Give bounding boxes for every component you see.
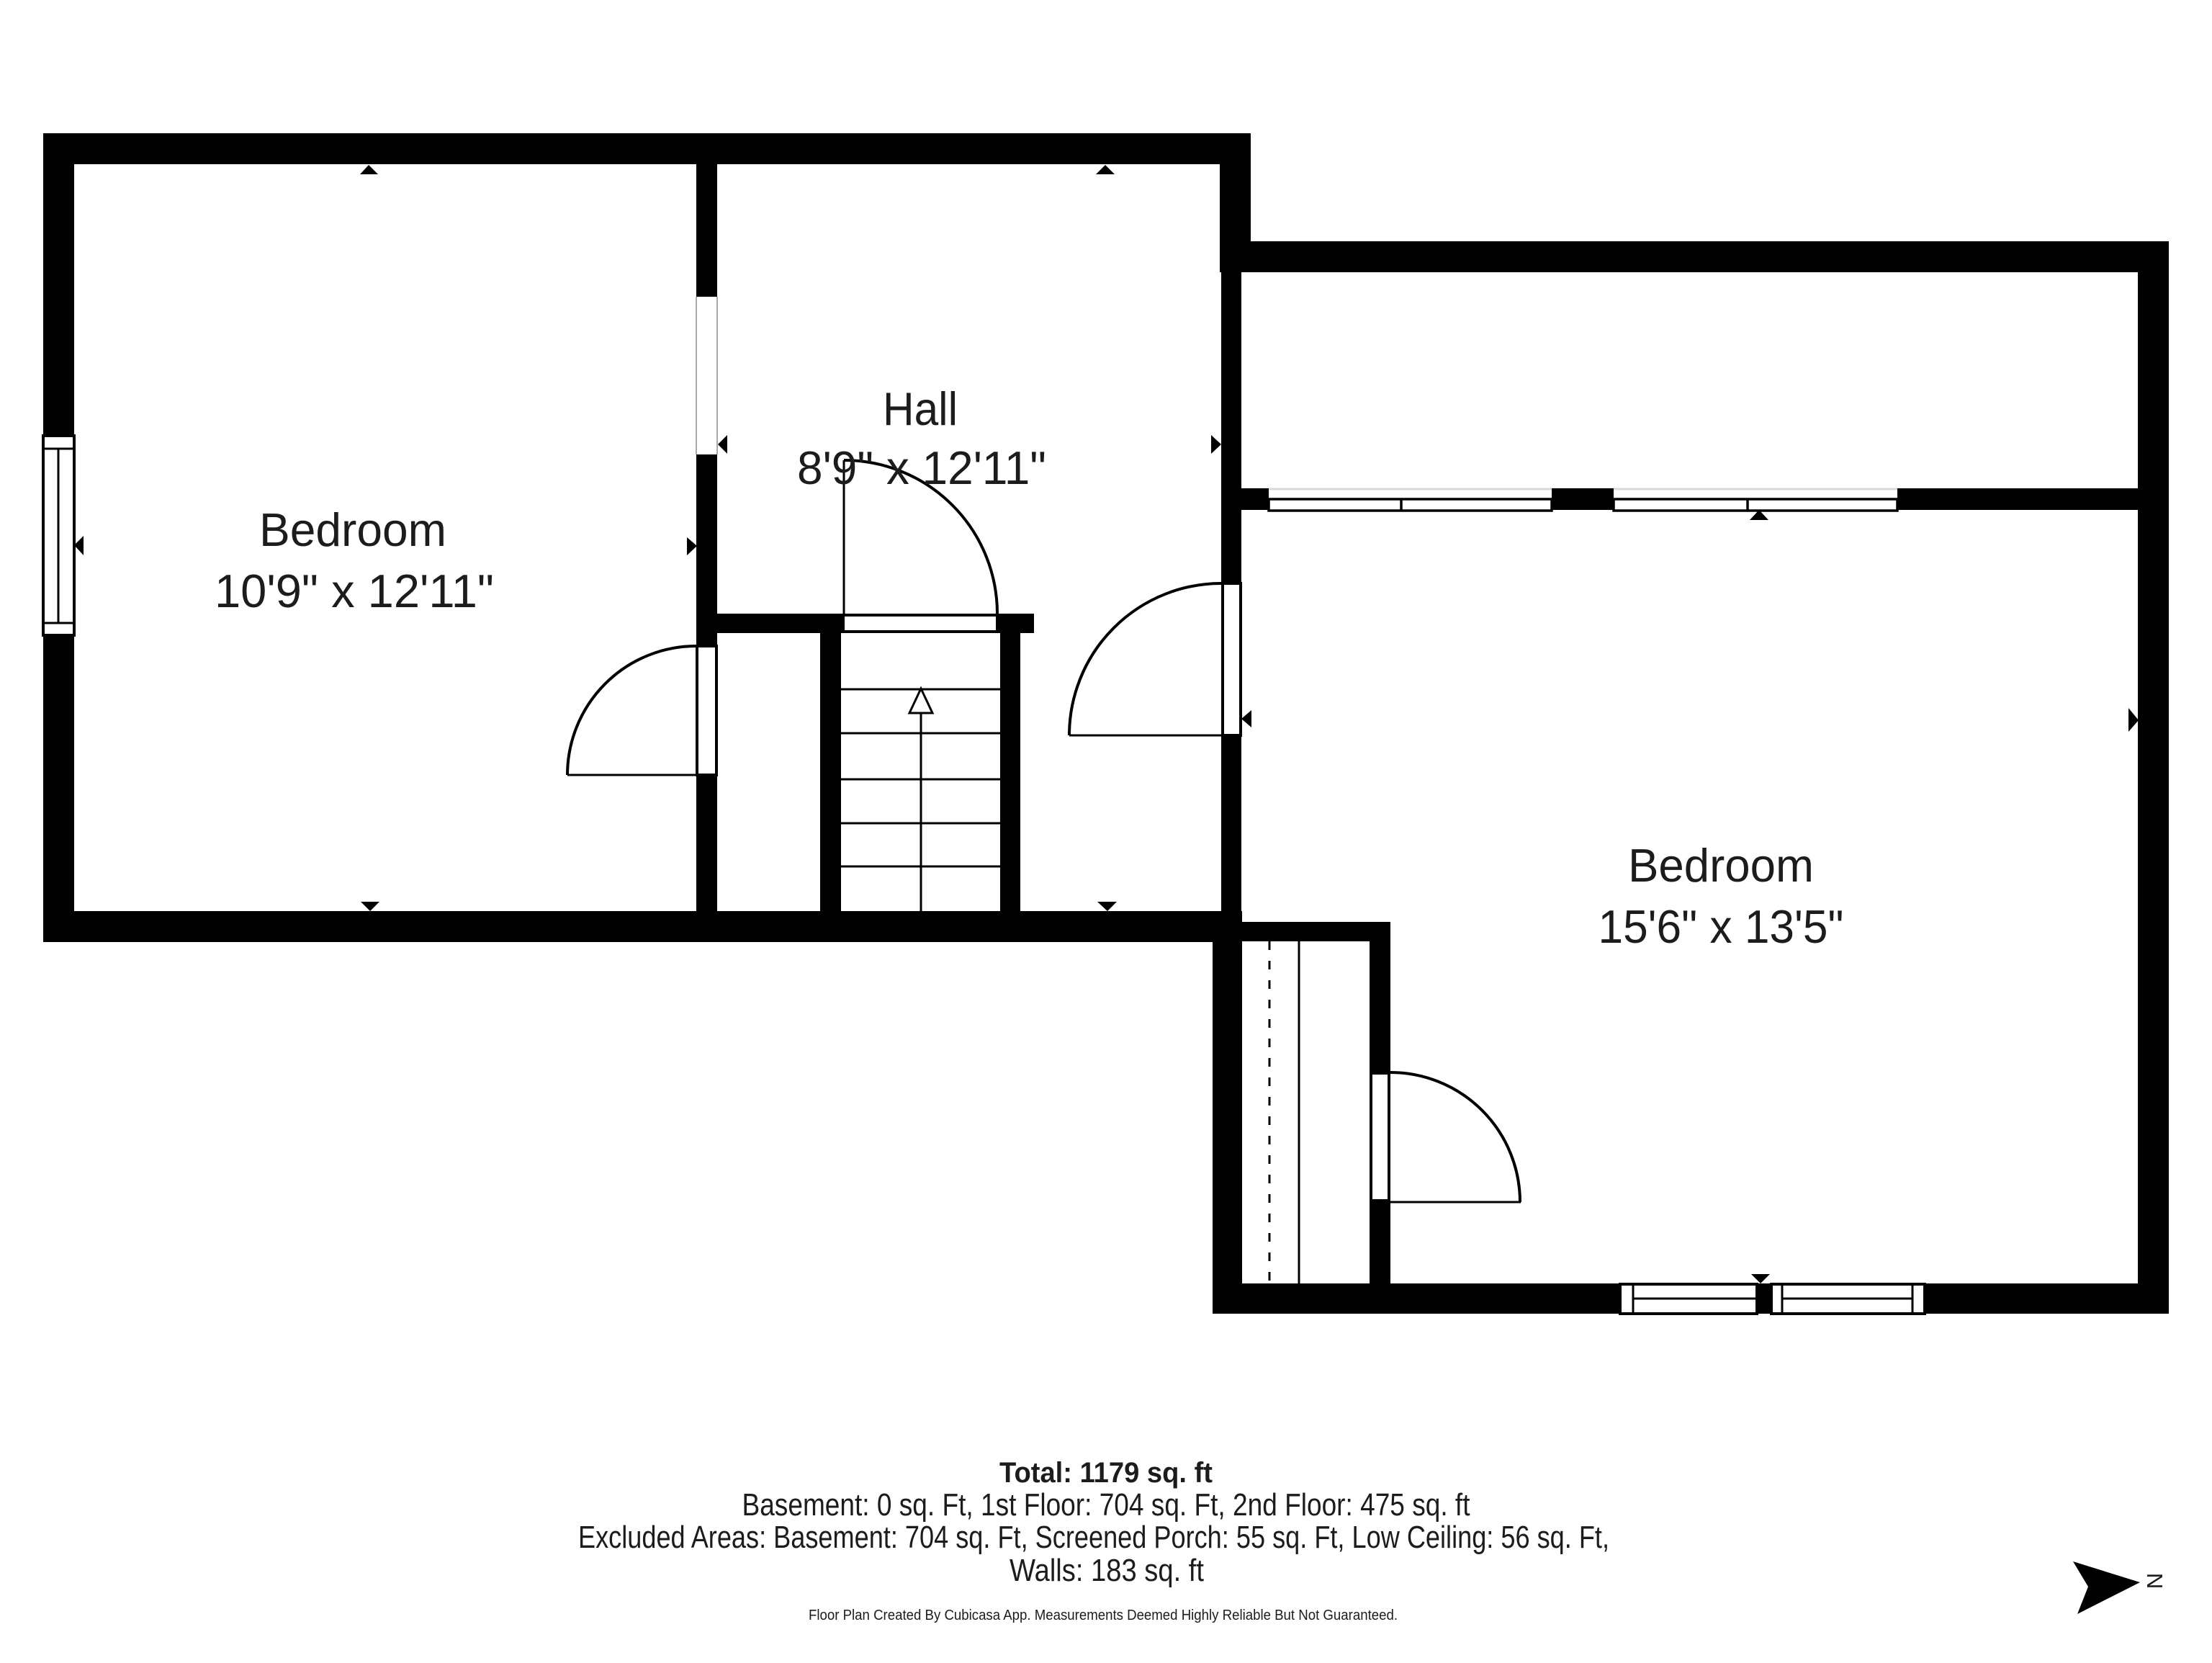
svg-text:Bedroom: Bedroom bbox=[259, 503, 446, 556]
svg-text:Total: 1179 sq. ft: Total: 1179 sq. ft bbox=[999, 1457, 1213, 1489]
svg-text:10'9" x 12'11": 10'9" x 12'11" bbox=[215, 565, 494, 617]
svg-text:Basement: 0 sq. Ft, 1st Floor:: Basement: 0 sq. Ft, 1st Floor: 704 sq. F… bbox=[742, 1488, 1470, 1523]
svg-text:15'6" x 13'5": 15'6" x 13'5" bbox=[1599, 900, 1844, 953]
svg-text:Bedroom: Bedroom bbox=[1628, 839, 1814, 892]
svg-text:Excluded Areas: Basement: 704: Excluded Areas: Basement: 704 sq. Ft, Sc… bbox=[578, 1520, 1609, 1555]
svg-text:8'9" x 12'11": 8'9" x 12'11" bbox=[797, 441, 1046, 494]
svg-text:Hall: Hall bbox=[883, 382, 958, 435]
svg-text:N: N bbox=[2142, 1573, 2167, 1589]
svg-text:Floor Plan Created By Cubicasa: Floor Plan Created By Cubicasa App. Meas… bbox=[809, 1608, 1398, 1623]
svg-text:Walls: 183 sq. ft: Walls: 183 sq. ft bbox=[1010, 1554, 1204, 1588]
